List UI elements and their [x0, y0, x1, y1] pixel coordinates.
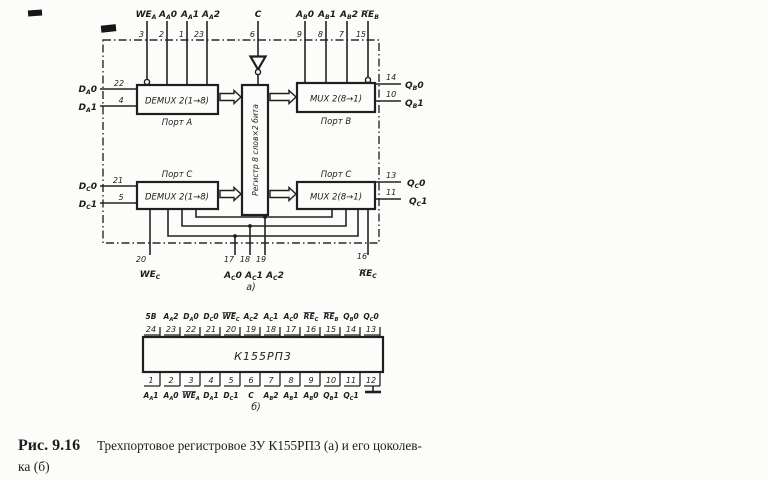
block-title-register: Регистр 8 слов×2 бита	[251, 104, 260, 196]
caption-line1: Трехпортовое регистровое ЗУ К155РП3 (а) …	[97, 438, 422, 453]
pin-number: 19	[246, 325, 256, 334]
scanned-figure-page: WEA AA0 AA1 AA2 C AB0 AB1 AB2 REB 3 2 1 …	[0, 0, 768, 480]
ground-icon	[365, 386, 381, 392]
pin-label-ab0: AB0	[303, 391, 319, 402]
scan-artifact	[28, 10, 42, 17]
pinout-diagram-b: К155РП3 24 23 22 21 20 19 18 17 16 15 14…	[143, 312, 383, 413]
pin-number: 3	[188, 376, 193, 385]
pin-number: 1	[148, 376, 153, 385]
pin-number: 8	[318, 30, 323, 39]
inverter-icon	[251, 57, 266, 70]
signal-label-da0: DA0	[79, 85, 97, 96]
pin-label-da1: DA1	[203, 391, 218, 402]
pin-number: 3	[139, 30, 144, 39]
pin-number: 10	[326, 376, 336, 385]
signal-label-ab0: AB0	[295, 10, 314, 21]
pin-label-ab1: AB1	[283, 391, 299, 402]
block-title-demux-c: DEMUX 2(1→8)	[145, 193, 209, 203]
pin-number: 4	[118, 96, 123, 105]
pin-number: 14	[346, 325, 356, 334]
port-label-c-left: Порт С	[162, 170, 193, 180]
bus-arrow-icon	[220, 91, 241, 104]
pin-number: 5	[118, 193, 123, 202]
block-title-mux-c: MUX 2(8→1)	[310, 193, 362, 203]
pin-label-aa0: AA0	[163, 391, 179, 402]
pin-label-ac1: AC1	[263, 312, 279, 323]
bus-arrow-icon	[270, 91, 296, 104]
pin-number: 8	[288, 376, 293, 385]
pin-number: 2	[159, 30, 164, 39]
port-label-b: Порт В	[321, 117, 352, 127]
signal-label-rec: REC	[359, 269, 377, 280]
pin-label-qb0: QB0	[343, 312, 359, 323]
pin-label-wea: WEA	[182, 391, 199, 402]
pin-label-wec: WEC	[222, 312, 239, 323]
pin-number: 11	[346, 376, 356, 385]
signal-label-c: C	[255, 10, 262, 20]
caption-reference: Рис. 9.16	[18, 437, 80, 454]
scan-artifact	[101, 24, 117, 33]
pin-number: 22	[114, 79, 124, 88]
pin-number: 19	[256, 255, 266, 264]
pinout-bottom-pin-ticks	[144, 372, 380, 386]
pin-number: 9	[308, 376, 313, 385]
pin-number: 7	[268, 376, 274, 385]
pin-number: 21	[206, 325, 216, 334]
bus-arrow-icon	[270, 188, 296, 201]
pin-label-da0: DA0	[183, 312, 198, 323]
pin-label-qb1: QB1	[323, 391, 339, 402]
pin-number: 23	[166, 325, 176, 334]
pin-number: 20	[136, 255, 146, 264]
pin-number: 13	[386, 171, 396, 180]
pin-label-5v: 5В	[146, 312, 157, 321]
pin-number: 18	[266, 325, 276, 334]
block-title-mux-b: MUX 2(8→1)	[310, 95, 362, 105]
pin-number: 10	[386, 90, 396, 99]
pin-number: 9	[297, 30, 302, 39]
pin-label-ac2: AC2	[243, 312, 259, 323]
pin-number: 16	[357, 252, 367, 261]
pin-number: 20	[226, 325, 236, 334]
signal-label-aa1: AA1	[180, 10, 199, 21]
signal-label-qb0: QB0	[405, 81, 424, 92]
pin-number: 24	[146, 325, 156, 334]
signal-label-ab1: AB1	[317, 10, 336, 21]
pin-number: 14	[386, 73, 396, 82]
pin-number: 6	[250, 30, 255, 39]
pin-label-aa1: AA1	[143, 391, 159, 402]
signal-label-qc0: QC0	[407, 179, 425, 190]
subfigure-label-a: а)	[246, 282, 256, 293]
signal-label-wea: WEA	[136, 10, 157, 21]
pin-number: 6	[248, 376, 253, 385]
signal-label-aa2: AA2	[201, 10, 220, 21]
port-label-a: Порт А	[162, 118, 193, 128]
signal-label-wec: WEC	[140, 270, 161, 281]
pin-number: 7	[339, 30, 345, 39]
pin-number: 2	[168, 376, 173, 385]
signal-label-reb: REB	[361, 10, 379, 21]
signal-label-ab2: AB2	[339, 10, 358, 21]
port-label-c-right: Порт С	[321, 170, 352, 180]
pin-label-dc1: DC1	[223, 391, 238, 402]
pin-label-dc0: DC0	[203, 312, 218, 323]
pin-number: 15	[326, 325, 336, 334]
pin-label-reb: REB	[324, 312, 339, 323]
bus-arrow-icon	[220, 188, 241, 201]
pin-label-rec: REC	[304, 312, 319, 323]
subfigure-label-b: б)	[251, 402, 261, 413]
caption-line2: ка (б)	[18, 459, 50, 474]
block-title-demux-a: DEMUX 2(1→8)	[145, 97, 209, 107]
signal-label-dc0: DC0	[79, 182, 97, 193]
signal-label-da1: DA1	[79, 103, 97, 114]
pin-number: 23	[194, 30, 204, 39]
figure-svg: WEA AA0 AA1 AA2 C AB0 AB1 AB2 REB 3 2 1 …	[0, 0, 768, 480]
pin-number: 13	[366, 325, 376, 334]
schematic-diagram-a: WEA AA0 AA1 AA2 C AB0 AB1 AB2 REB 3 2 1 …	[79, 10, 428, 293]
pin-label-qc1: QC1	[343, 391, 358, 402]
pin-number: 18	[240, 255, 250, 264]
pin-label-c: C	[248, 391, 254, 400]
pin-label-qc0: QC0	[363, 312, 378, 323]
pin-number: 17	[286, 325, 297, 334]
pinout-top-pin-ticks	[144, 327, 380, 337]
pin-number: 4	[208, 376, 213, 385]
inversion-bubble-clock	[255, 69, 260, 74]
signal-label-ac0: AC0	[223, 271, 242, 282]
signal-label-dc1: DC1	[79, 200, 97, 211]
pin-number: 15	[356, 30, 366, 39]
inversion-bubble-wea	[144, 79, 149, 84]
inversion-bubble-reb	[365, 77, 370, 82]
pin-label-ac0: AC0	[283, 312, 299, 323]
pin-number: 21	[113, 176, 123, 185]
pin-label-ab2: AB2	[263, 391, 279, 402]
signal-label-ac1: AC1	[244, 271, 263, 282]
pin-number: 1	[179, 30, 184, 39]
pin-number: 22	[186, 325, 196, 334]
chip-name: К155РП3	[234, 350, 292, 363]
pin-number: 12	[366, 376, 376, 385]
signal-label-qc1: QC1	[409, 197, 427, 208]
figure-caption: Рис. 9.16 Трехпортовое регистровое ЗУ К1…	[18, 437, 422, 474]
pin-number: 5	[228, 376, 233, 385]
pin-number: 16	[306, 325, 316, 334]
signal-label-ac2: AC2	[265, 271, 284, 282]
pin-number: 17	[224, 255, 235, 264]
signal-label-qb1: QB1	[405, 99, 424, 110]
pin-number: 11	[386, 188, 396, 197]
pin-label-aa2: AA2	[163, 312, 179, 323]
signal-label-aa0: AA0	[158, 10, 177, 21]
